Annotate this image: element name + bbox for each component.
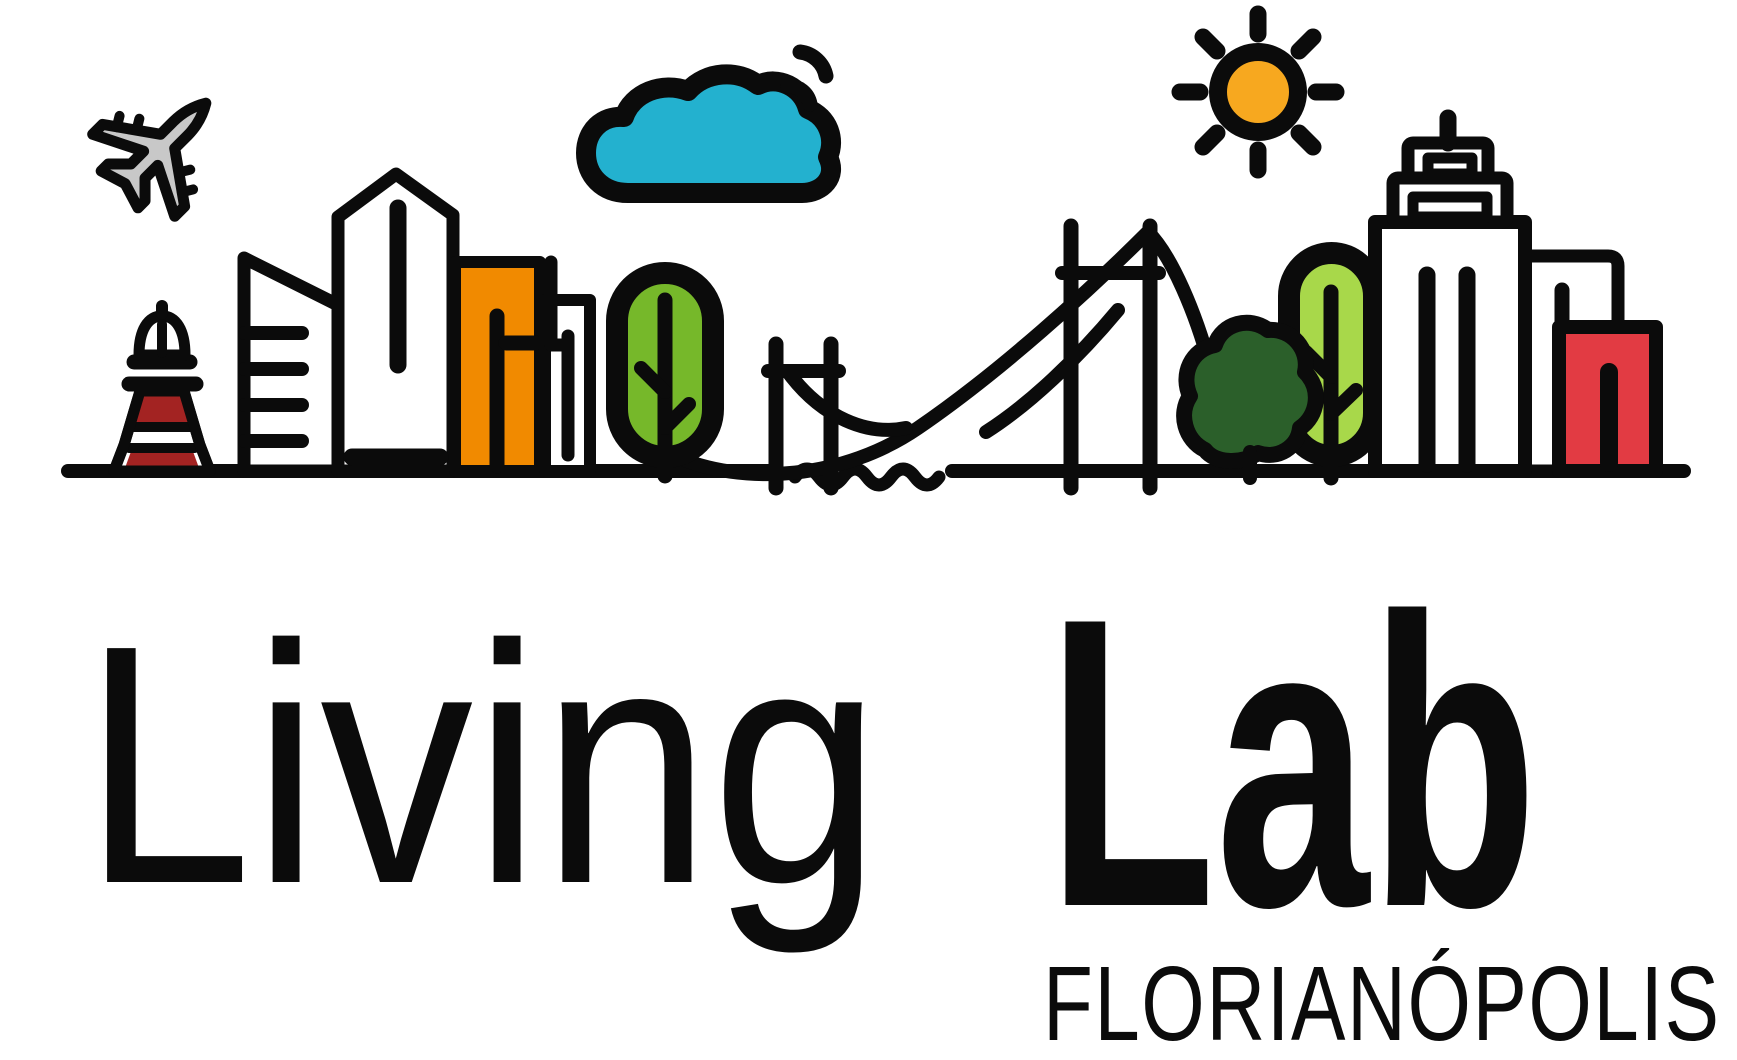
wordmark-city: FLORIANÓPOLIS xyxy=(1043,945,1721,1060)
lighthouse-icon xyxy=(114,306,210,471)
skyline-buildings-icon xyxy=(244,174,590,471)
airplane-icon xyxy=(79,62,247,230)
sun-ray xyxy=(1203,37,1217,51)
sun-icon xyxy=(1180,14,1336,170)
skyscraper-body xyxy=(1375,222,1525,471)
tier-window xyxy=(1413,197,1487,217)
bush-crown xyxy=(1184,323,1316,461)
tree-icon xyxy=(617,273,713,476)
sun-ray xyxy=(1299,37,1313,51)
bridge-cable xyxy=(788,372,906,430)
engine-stub xyxy=(182,185,193,196)
sun-ray xyxy=(1203,133,1217,147)
engine-stub xyxy=(113,116,124,127)
wordmark-lab: Lab xyxy=(1047,534,1538,993)
wordmark-living: Living xyxy=(82,574,882,956)
sun-ray xyxy=(1299,133,1313,147)
skyline-buildings-icon xyxy=(1375,118,1656,471)
living-lab-logo: Living Lab FLORIANÓPOLIS xyxy=(0,0,1737,1060)
lighthouse-stripe xyxy=(136,394,188,424)
suspension-bridge-icon xyxy=(672,226,1210,488)
engine-stub xyxy=(132,119,143,130)
tier-window xyxy=(1428,158,1472,174)
engine-stub xyxy=(179,165,190,176)
bush-tree-icon xyxy=(1184,323,1316,478)
